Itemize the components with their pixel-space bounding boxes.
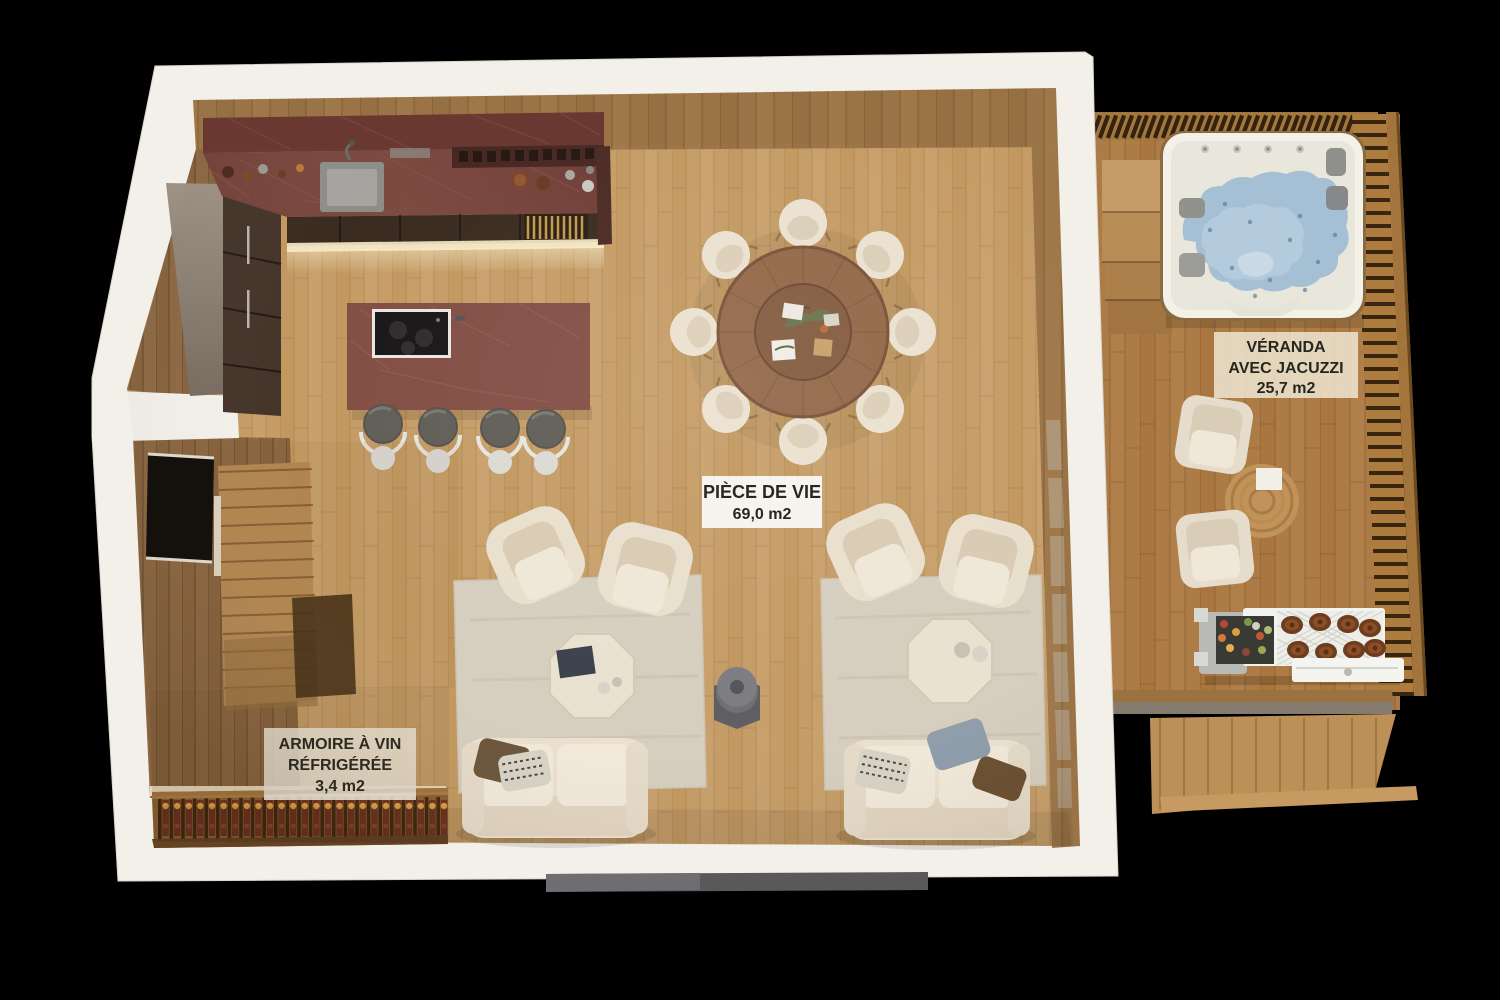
svg-text:AVEC JACUZZI: AVEC JACUZZI (1228, 360, 1343, 377)
svg-text:VÉRANDA: VÉRANDA (1246, 337, 1326, 356)
svg-text:25,7 m2: 25,7 m2 (1257, 380, 1316, 397)
